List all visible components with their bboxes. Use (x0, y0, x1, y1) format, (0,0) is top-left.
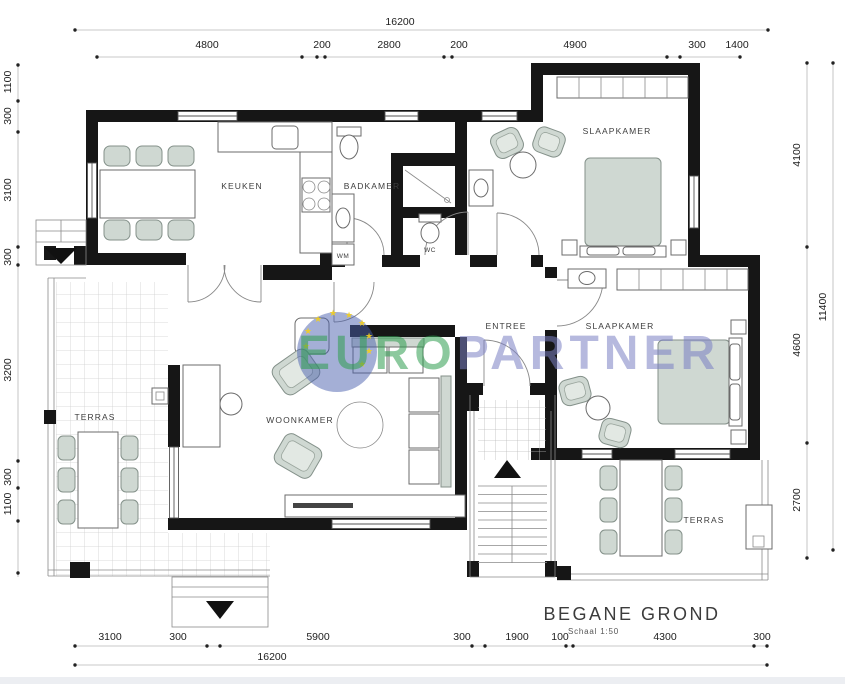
window (675, 450, 730, 459)
washbasin (336, 208, 350, 228)
stove (302, 178, 330, 212)
wall-segment (403, 153, 455, 166)
chair (665, 530, 682, 554)
bed (585, 158, 661, 246)
chair (168, 220, 194, 240)
dim-label: 200 (450, 39, 468, 51)
terras-post (70, 562, 90, 578)
nightstand (671, 240, 686, 255)
dim-label: 1400 (725, 39, 749, 51)
window (582, 450, 612, 459)
stair-treads (478, 486, 547, 563)
dim-label: 4900 (563, 39, 587, 51)
chair (104, 220, 130, 240)
dim-label: 4800 (195, 39, 219, 51)
window (385, 112, 418, 121)
chair (58, 436, 75, 460)
scale-label: Schaal 1:50 (568, 627, 619, 636)
floorplan-drawing: ★ ★ ★ ★ ★ ★ ★ ★ ★ EUROPARTNER KEUKEN BAD… (0, 0, 845, 684)
dim-label: 3100 (2, 178, 14, 202)
dimensions-left: 1100 300 3100 300 3200 300 1100 (2, 63, 20, 577)
dim-label: 300 (2, 248, 14, 266)
dim-label: 3100 (98, 631, 122, 643)
terras-west-tiles (56, 282, 270, 576)
wall-segment (688, 63, 700, 267)
nightstand (731, 430, 746, 444)
chair (136, 220, 162, 240)
window (690, 176, 699, 228)
title-block: BEGANE GROND Schaal 1:50 (543, 604, 720, 636)
window (88, 163, 97, 218)
dim-right-total: 11400 (817, 293, 829, 322)
dim-label: 300 (2, 107, 14, 125)
terras-west-floor (48, 278, 270, 576)
dim-label: 2800 (377, 39, 401, 51)
porch-landing-tiles (478, 400, 546, 460)
window (178, 112, 237, 121)
dim-label: 4300 (653, 631, 677, 643)
terras-french-doors (188, 265, 261, 302)
pillow (623, 247, 655, 255)
room-label-wc: WC (424, 247, 436, 254)
chair (121, 468, 138, 492)
side-table (510, 152, 536, 178)
dim-label: 3200 (2, 358, 14, 382)
wall-post (467, 395, 479, 411)
chair (600, 466, 617, 490)
outdoor-table (78, 432, 118, 528)
wall-segment (455, 122, 467, 255)
pillow (730, 344, 740, 380)
svg-text:★: ★ (345, 310, 353, 320)
tv (293, 503, 353, 508)
window (170, 447, 179, 518)
rug (337, 402, 383, 448)
wall-segment (531, 63, 700, 75)
chair (600, 498, 617, 522)
dimensions-top: 16200 4800 200 2800 200 4900 300 1400 (73, 16, 769, 59)
room-label-woonkamer: WOONKAMER (266, 415, 334, 425)
chair (665, 498, 682, 522)
toilet-tank (419, 214, 441, 222)
wall-segment (86, 110, 543, 122)
room-label-badkamer: BADKAMER (344, 181, 401, 191)
wall-segment (86, 253, 186, 265)
room-label-terras-west: TERRAS (74, 412, 115, 422)
desk (183, 365, 220, 447)
dim-label: 4100 (791, 143, 803, 167)
wall-unit (152, 388, 168, 404)
svg-text:★: ★ (329, 308, 337, 318)
chair (121, 500, 138, 524)
stair-arrow-up (494, 460, 521, 478)
dim-label: 5900 (306, 631, 330, 643)
room-label-slaapkamer1: SLAAPKAMER (583, 126, 652, 136)
washbasin (579, 272, 595, 285)
room-label-keuken: KEUKEN (221, 181, 263, 191)
pillow (730, 384, 740, 420)
room-label-wm: WM (337, 253, 350, 260)
dim-label: 300 (453, 631, 471, 643)
floorplan-page: ★ ★ ★ ★ ★ ★ ★ ★ ★ EUROPARTNER KEUKEN BAD… (0, 0, 845, 684)
armchair (530, 125, 567, 160)
chair (58, 468, 75, 492)
door-slaapkamer1 (497, 213, 539, 255)
bottom-strip (0, 677, 845, 684)
window (332, 520, 430, 529)
pillow (587, 247, 619, 255)
terras-post (557, 566, 571, 580)
room-label-entree: ENTREE (485, 321, 526, 331)
wall-segment (688, 255, 760, 267)
nightstand (562, 240, 577, 255)
room-label-terras-zuid: TERRAS (683, 515, 724, 525)
dim-label: 1900 (505, 631, 529, 643)
armchair (597, 417, 633, 450)
wall-segment (748, 267, 760, 460)
dim-label: 200 (313, 39, 331, 51)
slaapkamer1-furniture (469, 77, 688, 257)
south-porch-steps (172, 577, 268, 627)
terras-west-furniture (58, 432, 138, 528)
dim-label: 100 (551, 631, 569, 643)
svg-text:★: ★ (314, 314, 322, 324)
nightstand (731, 320, 746, 334)
desk-chair (220, 393, 242, 415)
dim-top-total: 16200 (385, 16, 414, 28)
toilet (340, 135, 358, 159)
wall-segment (168, 365, 180, 447)
chair (600, 530, 617, 554)
dim-label: 1100 (2, 493, 14, 516)
entrance-porch (470, 395, 555, 577)
dining-table (100, 170, 195, 218)
dimensions-bottom: 3100 300 5900 300 1900 100 4300 300 1620… (73, 631, 771, 667)
room-label-slaapkamer2: SLAAPKAMER (586, 321, 655, 331)
wardrobe (617, 269, 748, 290)
washbasin (474, 179, 488, 197)
side-table (586, 396, 610, 420)
chair (104, 146, 130, 166)
dimensions-right: 4100 4600 2700 11400 (791, 61, 835, 559)
armchair (271, 431, 324, 481)
chair (58, 500, 75, 524)
wall-post (467, 561, 479, 577)
wall-segment (391, 153, 403, 255)
chair (136, 146, 162, 166)
dim-label: 4600 (791, 333, 803, 357)
outdoor-table (620, 460, 662, 556)
chair (665, 466, 682, 490)
terras-post (44, 410, 56, 424)
dim-label: 300 (2, 468, 14, 486)
chair (168, 146, 194, 166)
dim-label: 300 (753, 631, 771, 643)
dim-bottom-total: 16200 (257, 651, 286, 663)
toilet (421, 223, 439, 243)
bbq-fixture (746, 505, 772, 549)
chair (121, 436, 138, 460)
wardrobe (557, 77, 688, 98)
window (482, 112, 517, 121)
kitchen-sink (272, 126, 298, 149)
shower-detail (405, 170, 451, 203)
watermark-text: EUROPARTNER (298, 327, 720, 380)
terras-south (557, 460, 772, 580)
dim-label: 1100 (2, 71, 14, 94)
stair-arrow-down (206, 601, 234, 619)
page-title: BEGANE GROND (543, 604, 720, 624)
wall-segment (263, 265, 332, 280)
dim-label: 300 (169, 631, 187, 643)
dim-label: 2700 (791, 488, 803, 512)
dim-label: 300 (688, 39, 706, 51)
